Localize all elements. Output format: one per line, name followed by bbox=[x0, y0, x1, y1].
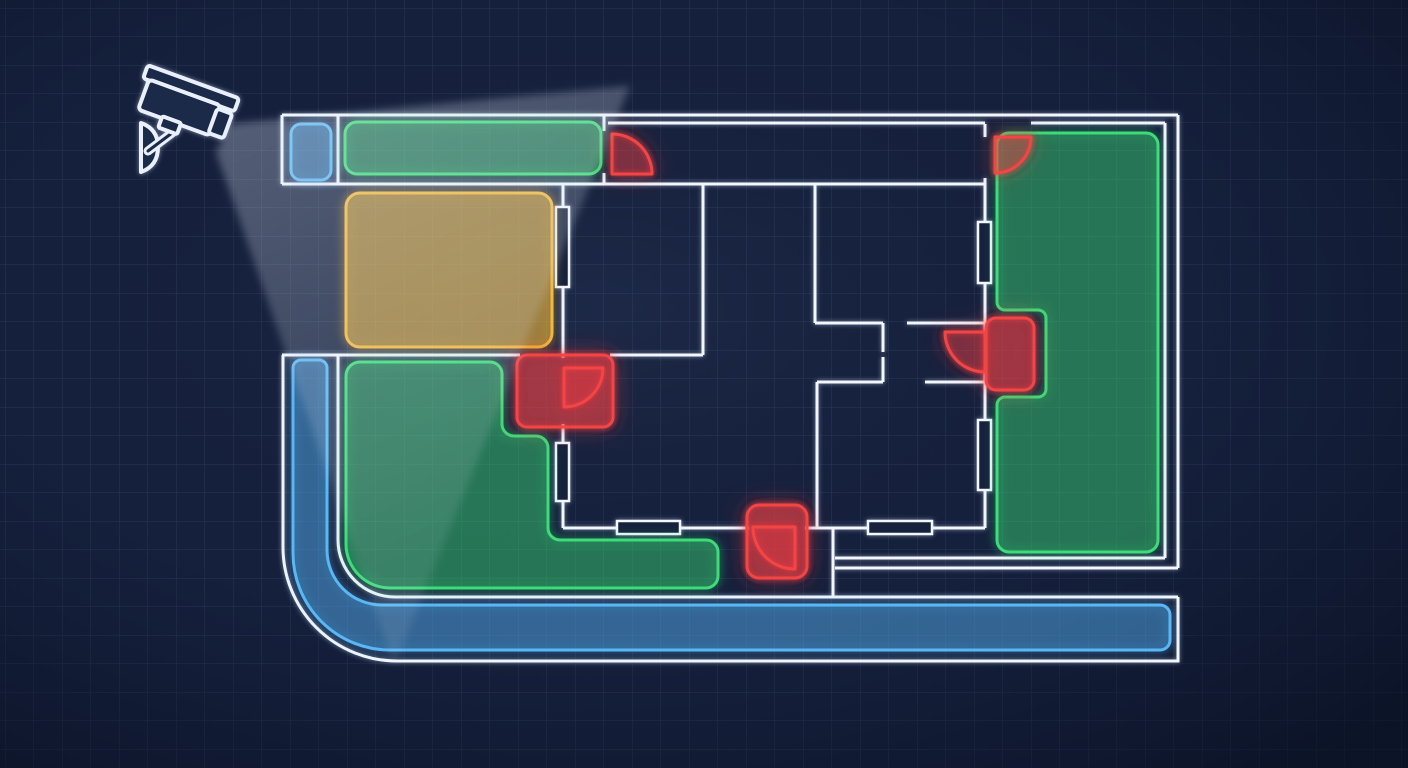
floorplan-scene bbox=[0, 0, 1408, 768]
door-sensor-pad bbox=[986, 318, 1034, 390]
window-marker bbox=[868, 521, 932, 534]
door-inner-left bbox=[517, 355, 613, 427]
window-marker bbox=[978, 420, 991, 490]
window-marker bbox=[617, 521, 680, 534]
window-marker bbox=[978, 222, 991, 283]
blueprint-canvas bbox=[0, 0, 1408, 768]
door-bottom bbox=[747, 505, 807, 578]
window-marker bbox=[556, 443, 569, 501]
